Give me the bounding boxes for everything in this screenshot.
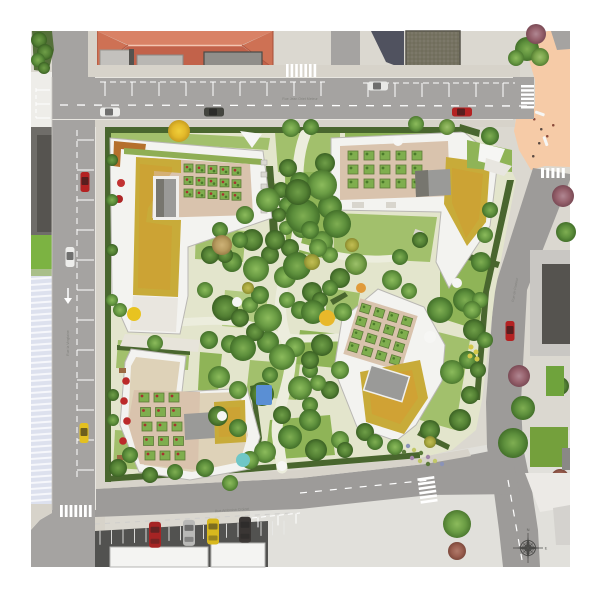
svg-text:Rue la Vingtaine: Rue la Vingtaine: [66, 330, 70, 356]
svg-text:N: N: [527, 527, 530, 532]
svg-text:E: E: [545, 546, 548, 551]
svg-text:Rue Jean Oriet Meteur: Rue Jean Oriet Meteur: [282, 97, 318, 101]
